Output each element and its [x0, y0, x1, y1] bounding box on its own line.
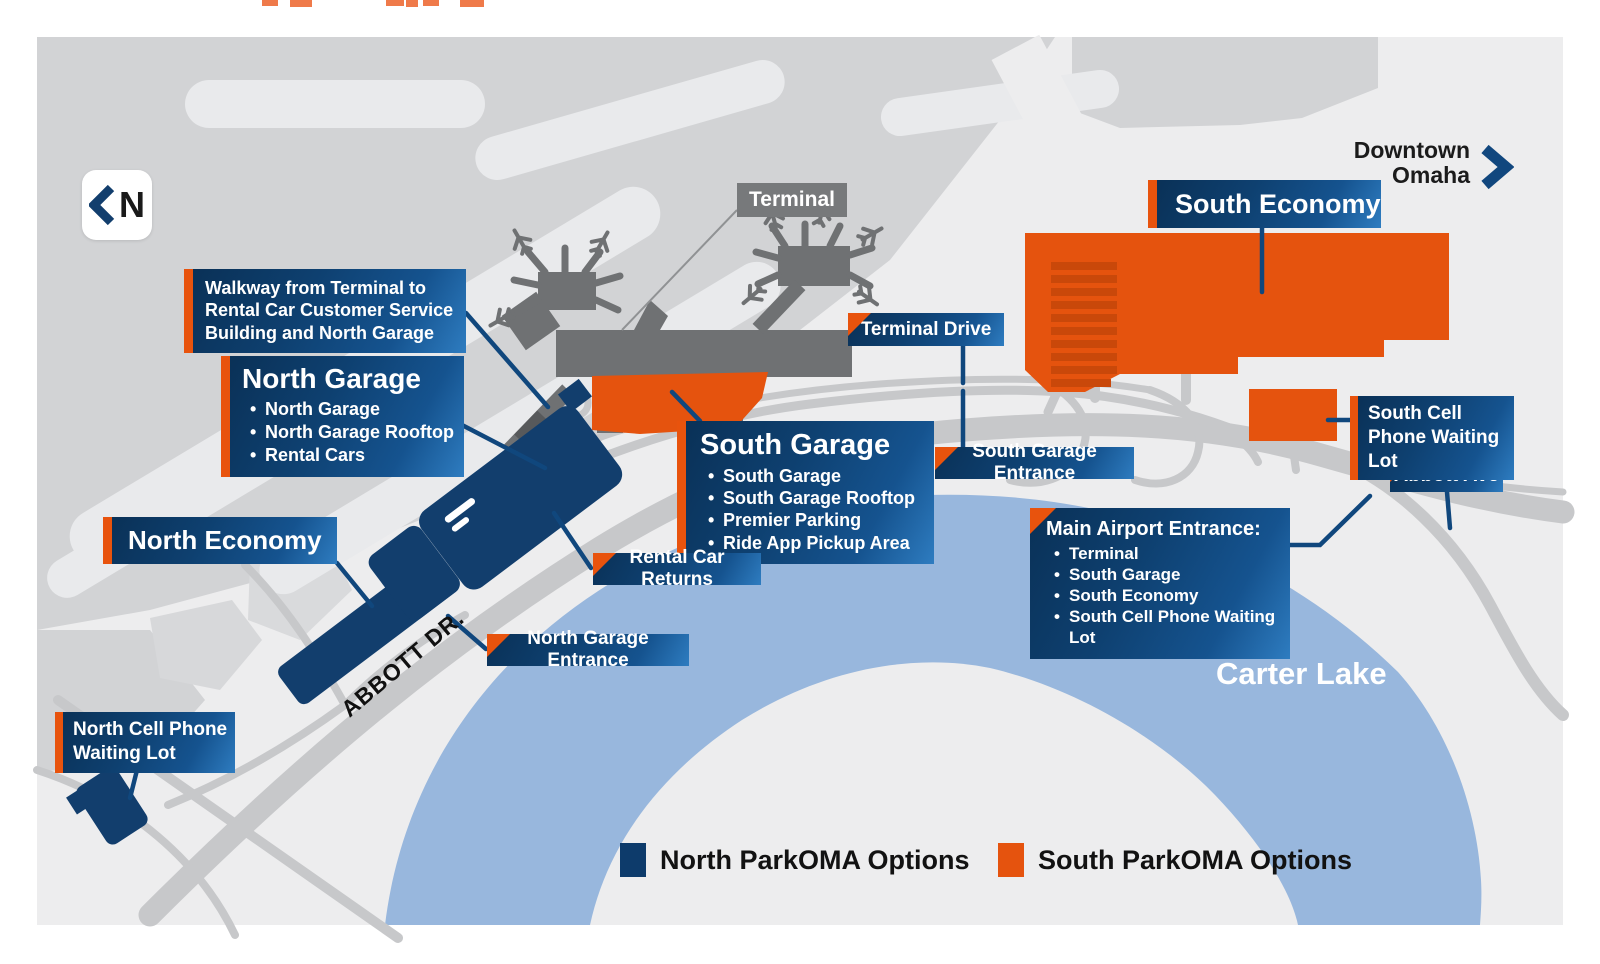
- south-garage-title: South Garage: [700, 428, 926, 463]
- legend-south-parkoma: South ParkOMA Options: [998, 843, 1352, 877]
- south-garage-callout: South Garage South Garage South Garage R…: [677, 421, 934, 564]
- compass-north-label: N: [119, 184, 145, 226]
- cropped-logo-fragments: [262, 0, 484, 7]
- road-stub: [1292, 442, 1296, 470]
- north-garage-bullet-list: North Garage North Garage Rooftop Rental…: [242, 398, 456, 467]
- north-economy-label: North Economy: [103, 517, 337, 564]
- south-garage-bullet-list: South Garage South Garage Rooftop Premie…: [700, 465, 926, 554]
- list-item: North Garage: [250, 398, 456, 421]
- concourse-east: [778, 246, 850, 286]
- airport-parking-map: N Downtown Omaha Terminal Walkway from T…: [0, 0, 1600, 964]
- runway-stripe: [185, 80, 485, 128]
- north-legend-swatch: [620, 843, 646, 877]
- chevron-left-icon: [89, 183, 115, 227]
- compass-north-indicator: N: [82, 170, 152, 240]
- main-airport-entrance-callout: Main Airport Entrance: Terminal South Ga…: [1030, 508, 1290, 659]
- south-economy-label: South Economy: [1148, 180, 1381, 228]
- south-legend-label: South ParkOMA Options: [1038, 843, 1352, 877]
- list-item: South Economy: [1054, 585, 1282, 606]
- concourse-west: [538, 272, 596, 310]
- south-cell-phone-lot: [1249, 389, 1337, 441]
- terminal-drive-label: Terminal Drive: [848, 313, 1004, 346]
- legend-north-parkoma: North ParkOMA Options: [620, 843, 970, 877]
- list-item: South Garage Rooftop: [708, 487, 926, 509]
- list-item: South Garage: [1054, 564, 1282, 585]
- main-airport-entrance-title: Main Airport Entrance:: [1046, 517, 1282, 541]
- north-cell-phone-label: North Cell Phone Waiting Lot: [55, 712, 235, 773]
- list-item: North Garage Rooftop: [250, 421, 456, 444]
- carter-lake-name: Carter Lake: [1216, 656, 1387, 692]
- list-item: Terminal: [1054, 543, 1282, 564]
- list-item: South Garage: [708, 465, 926, 487]
- south-cell-phone-label: South Cell Phone Waiting Lot: [1350, 396, 1514, 480]
- north-garage-title: North Garage: [242, 362, 456, 396]
- terminal-label: Terminal: [737, 183, 847, 217]
- north-garage-callout: North Garage North Garage North Garage R…: [221, 356, 464, 477]
- north-garage-entrance-label: North Garage Entrance: [487, 634, 689, 666]
- list-item: Premier Parking: [708, 509, 926, 531]
- list-item: South Cell Phone Waiting Lot: [1054, 606, 1282, 648]
- south-garage-entrance-label: South Garage Entrance: [935, 447, 1134, 479]
- leader-abbott-ave: [1447, 492, 1450, 528]
- north-legend-label: North ParkOMA Options: [660, 843, 970, 877]
- south-legend-swatch: [998, 843, 1024, 877]
- chevron-right-icon: [1478, 142, 1514, 192]
- walkway-callout: Walkway from Terminal to Rental Car Cust…: [184, 269, 466, 353]
- list-item: Rental Cars: [250, 444, 456, 467]
- main-airport-entrance-bullet-list: Terminal South Garage South Economy Sout…: [1046, 543, 1282, 648]
- rental-car-returns-label: Rental Car Returns: [593, 553, 761, 585]
